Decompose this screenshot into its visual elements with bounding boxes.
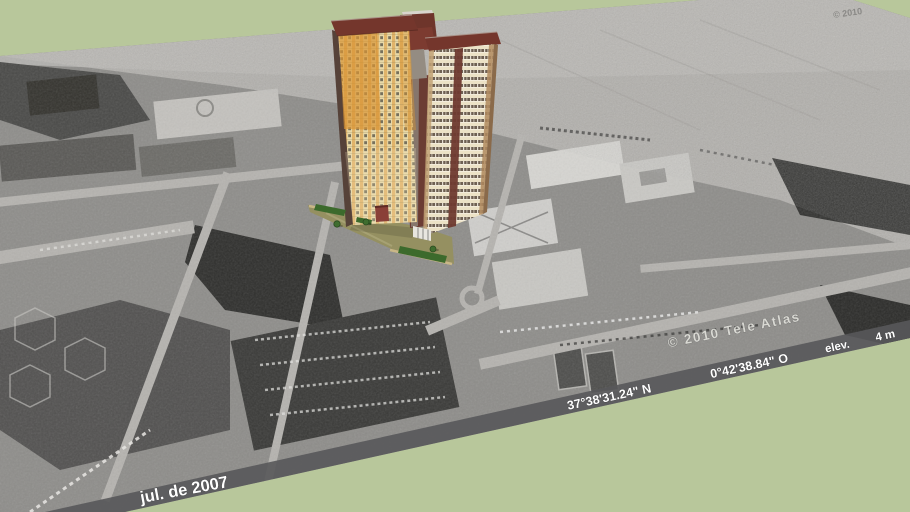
left-tower	[331, 15, 418, 227]
orange-panel-upper	[339, 31, 381, 130]
kiosk-roof	[375, 206, 388, 207]
earth-3d-viewport[interactable]: © 2010 Tele Atlas © 2010 jul. de 2007 37…	[0, 0, 910, 512]
viewport-canvas[interactable]: © 2010 Tele Atlas © 2010 jul. de 2007 37…	[0, 0, 910, 512]
